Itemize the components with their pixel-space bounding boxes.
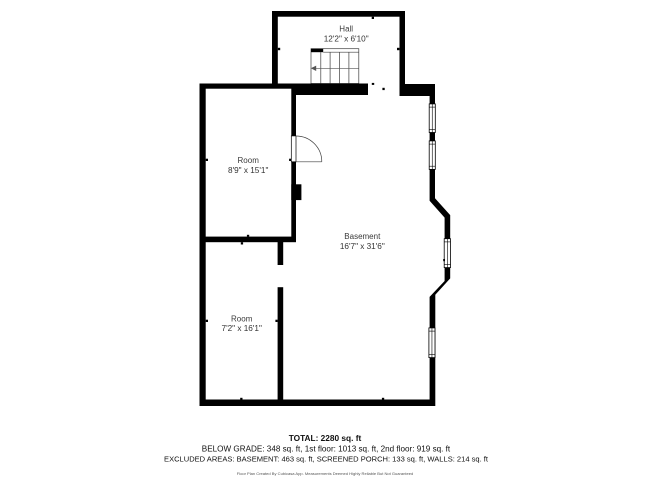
svg-text:Room: Room: [238, 156, 260, 165]
svg-text:BELOW GRADE: 348 sq. ft, 1st f: BELOW GRADE: 348 sq. ft, 1st floor: 1013…: [202, 444, 451, 453]
svg-text:TOTAL: 2280 sq. ft: TOTAL: 2280 sq. ft: [289, 433, 362, 443]
svg-text:16'7" x 31'6": 16'7" x 31'6": [340, 242, 385, 251]
svg-text:Room: Room: [231, 315, 253, 324]
svg-text:Hall: Hall: [339, 25, 353, 34]
svg-text:EXCLUDED AREAS: BASEMENT: 463: EXCLUDED AREAS: BASEMENT: 463 sq. ft, SC…: [164, 455, 489, 464]
svg-text:12'2" x 6'10": 12'2" x 6'10": [324, 35, 369, 44]
svg-text:7'2" x 16'1": 7'2" x 16'1": [222, 324, 262, 333]
svg-text:Basement: Basement: [344, 232, 381, 241]
svg-text:Floor Plan Created By Cubicasa: Floor Plan Created By Cubicasa App. Meas…: [237, 471, 414, 476]
svg-text:8'9" x 15'1": 8'9" x 15'1": [228, 166, 268, 175]
